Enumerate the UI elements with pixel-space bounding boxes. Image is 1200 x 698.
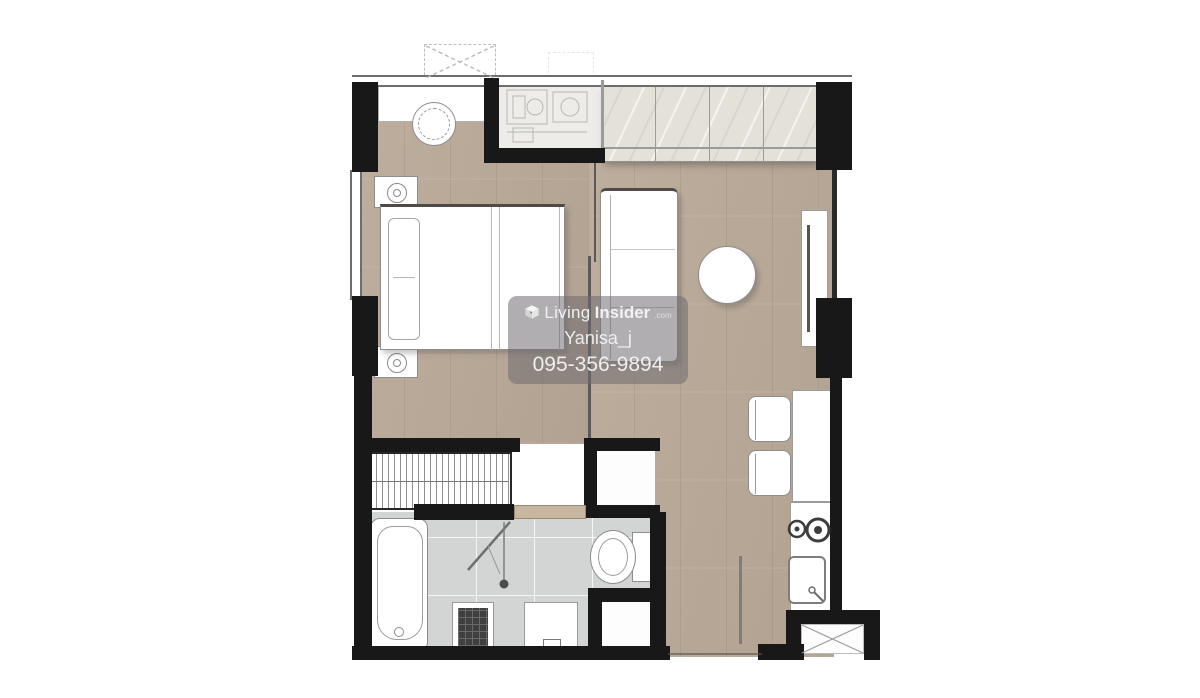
round-table bbox=[698, 246, 756, 304]
built-in-wardrobe bbox=[602, 82, 820, 162]
kitchen-faucet-icon bbox=[788, 556, 826, 604]
chair-back-line bbox=[755, 400, 756, 440]
utility-bottom-wall bbox=[484, 148, 605, 163]
sofa-cushion-line bbox=[611, 249, 675, 250]
pillar-right-mid bbox=[816, 298, 852, 378]
floor-plan-image: LivingInsider.com Yanisa_j 095-356-9894 bbox=[0, 0, 1200, 698]
table-lamp-icon bbox=[393, 359, 401, 367]
wardrobe-rail bbox=[372, 481, 508, 482]
shaft-right-wall bbox=[864, 610, 880, 660]
sliding-partition-panel bbox=[594, 162, 596, 262]
watermark-username: Yanisa_j bbox=[564, 327, 632, 350]
bed-pillow bbox=[388, 218, 420, 340]
wardrobe-divider bbox=[763, 83, 764, 161]
bed-blanket-fold bbox=[491, 207, 492, 350]
ac-condenser-cross-icon bbox=[424, 44, 496, 80]
watermark-brand-first: Living bbox=[544, 302, 590, 323]
tv-icon bbox=[807, 225, 810, 332]
kitchen-screen bbox=[739, 556, 742, 644]
service-shaft-cross-icon bbox=[801, 624, 864, 654]
table-lamp-icon bbox=[393, 189, 401, 197]
wardrobe-divider bbox=[655, 83, 656, 161]
dining-counter bbox=[792, 390, 832, 502]
chair-back-line bbox=[755, 454, 756, 494]
watermark: LivingInsider.com Yanisa_j 095-356-9894 bbox=[508, 296, 688, 384]
shower bbox=[360, 512, 660, 654]
watermark-brand-second: Insider bbox=[595, 302, 651, 323]
utility-equipment-icon bbox=[499, 80, 603, 150]
watermark-brand-suffix: .com bbox=[654, 311, 671, 321]
pillar-top-right bbox=[816, 82, 852, 170]
pillar-top-left bbox=[352, 82, 378, 172]
wardrobe-divider bbox=[709, 83, 710, 161]
fridge-niche bbox=[597, 450, 656, 506]
wardrobe-front-line bbox=[603, 147, 819, 149]
bedroom-bathroom-wall bbox=[356, 438, 520, 452]
bed-blanket-fold bbox=[499, 207, 500, 350]
living-insider-cube-icon bbox=[524, 304, 540, 320]
pillar-left-mid bbox=[352, 296, 378, 376]
entrance-threshold bbox=[668, 653, 762, 655]
chair bbox=[748, 450, 791, 496]
chair bbox=[748, 396, 791, 442]
watermark-phone: 095-356-9894 bbox=[533, 352, 664, 378]
hanging-wardrobe bbox=[368, 452, 512, 510]
left-window-wall bbox=[350, 170, 362, 300]
nightstand bbox=[374, 346, 418, 378]
washing-machine-drum bbox=[418, 108, 450, 140]
